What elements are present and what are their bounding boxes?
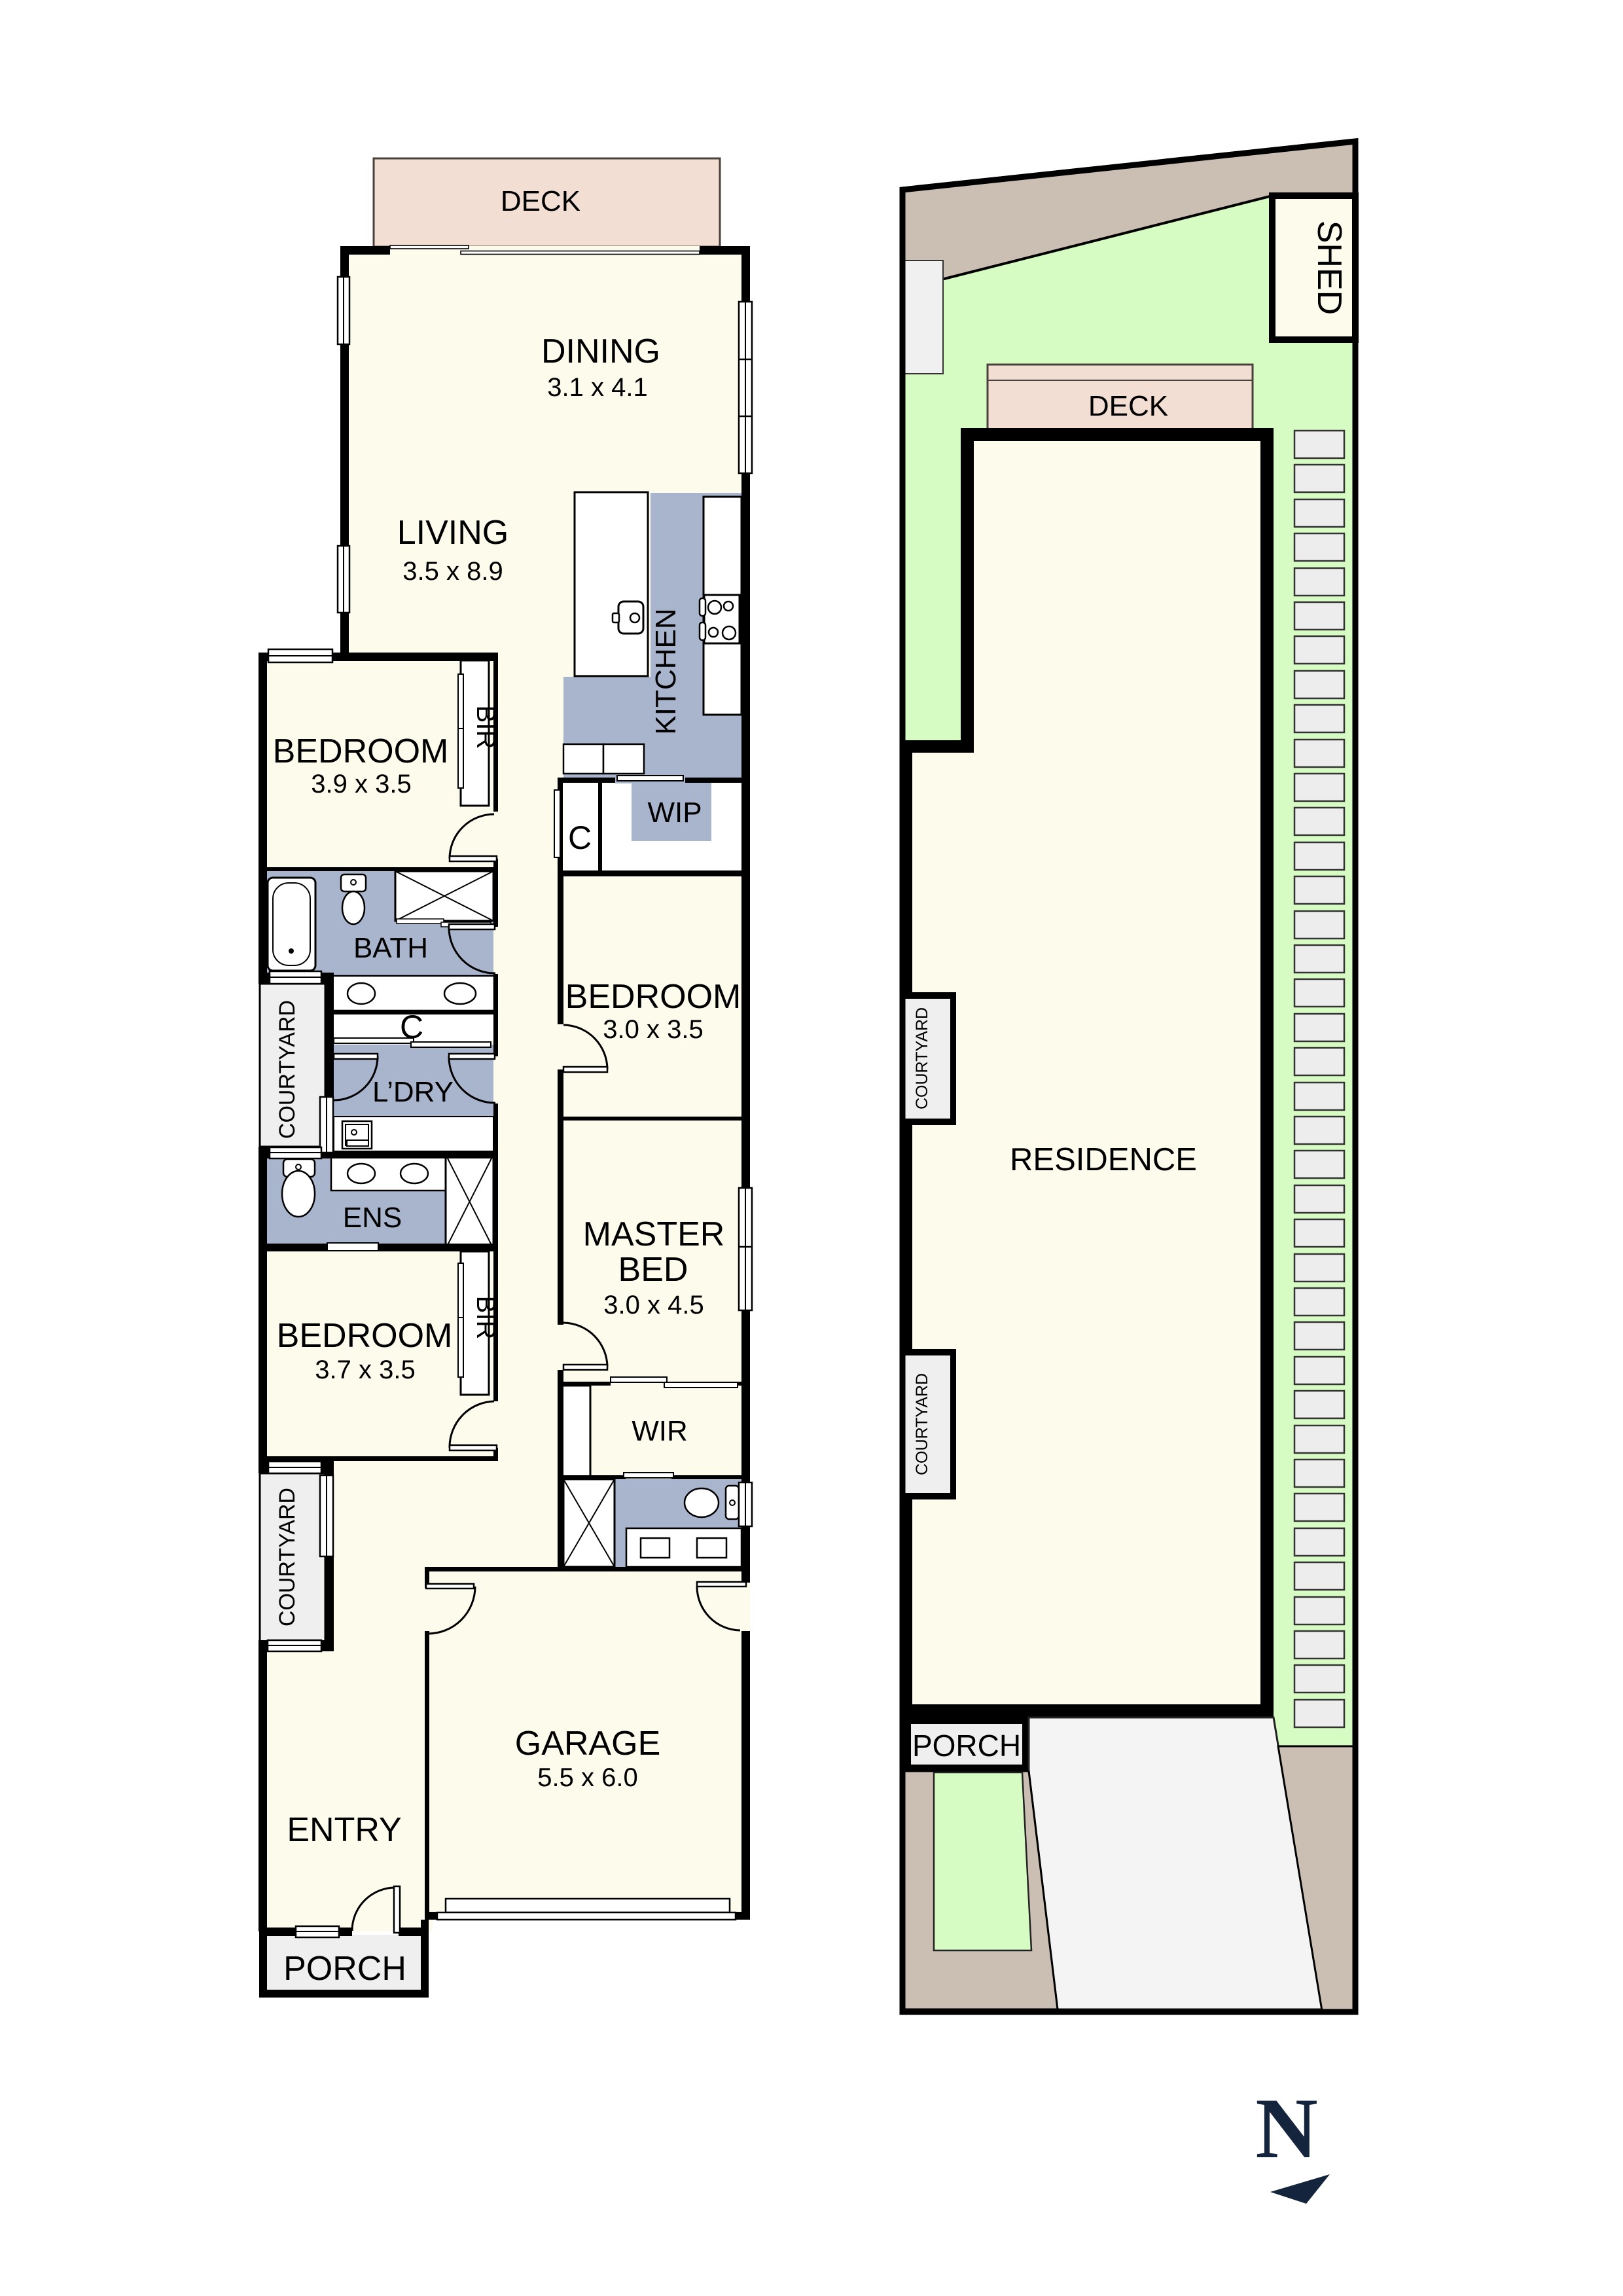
svg-text:BIR: BIR [471, 1296, 500, 1340]
svg-text:COURTYARD: COURTYARD [913, 1007, 931, 1109]
svg-text:C: C [568, 819, 592, 856]
svg-text:RESIDENCE: RESIDENCE [1010, 1142, 1197, 1177]
svg-text:PORCH: PORCH [912, 1729, 1021, 1763]
svg-text:C: C [400, 1009, 423, 1045]
svg-text:PORCH: PORCH [283, 1950, 406, 1988]
svg-text:WIP: WIP [647, 797, 702, 829]
svg-text:3.5 x 8.9: 3.5 x 8.9 [402, 557, 503, 586]
svg-text:COURTYARD: COURTYARD [275, 1488, 300, 1626]
svg-text:5.5 x 6.0: 5.5 x 6.0 [537, 1763, 637, 1792]
svg-text:DECK: DECK [501, 185, 580, 217]
svg-text:3.1 x 4.1: 3.1 x 4.1 [547, 373, 647, 402]
svg-text:COURTYARD: COURTYARD [275, 1000, 300, 1139]
svg-text:BED: BED [618, 1251, 688, 1289]
svg-text:DECK: DECK [1088, 390, 1168, 422]
svg-text:DINING: DINING [541, 332, 660, 370]
svg-text:WIR: WIR [632, 1415, 688, 1447]
svg-text:GARAGE: GARAGE [515, 1725, 661, 1763]
svg-text:BEDROOM: BEDROOM [565, 978, 741, 1016]
svg-text:LIVING: LIVING [397, 514, 509, 552]
svg-text:BEDROOM: BEDROOM [273, 732, 449, 770]
svg-text:COURTYARD: COURTYARD [913, 1373, 931, 1475]
svg-text:SHED: SHED [1310, 221, 1348, 315]
svg-text:N: N [1255, 2080, 1317, 2176]
svg-text:BATH: BATH [353, 932, 428, 964]
svg-text:KITCHEN: KITCHEN [650, 608, 682, 734]
svg-text:L’DRY: L’DRY [372, 1076, 454, 1108]
svg-text:3.7 x 3.5: 3.7 x 3.5 [315, 1355, 415, 1384]
svg-text:ENS: ENS [343, 1202, 402, 1234]
svg-text:3.0 x 4.5: 3.0 x 4.5 [603, 1291, 704, 1319]
svg-text:3.0 x 3.5: 3.0 x 3.5 [603, 1015, 703, 1044]
svg-text:BEDROOM: BEDROOM [277, 1317, 453, 1355]
svg-text:MASTER: MASTER [583, 1215, 725, 1253]
svg-text:BIR: BIR [471, 706, 500, 749]
svg-text:3.9 x 3.5: 3.9 x 3.5 [311, 770, 411, 798]
svg-text:ENTRY: ENTRY [287, 1811, 401, 1849]
